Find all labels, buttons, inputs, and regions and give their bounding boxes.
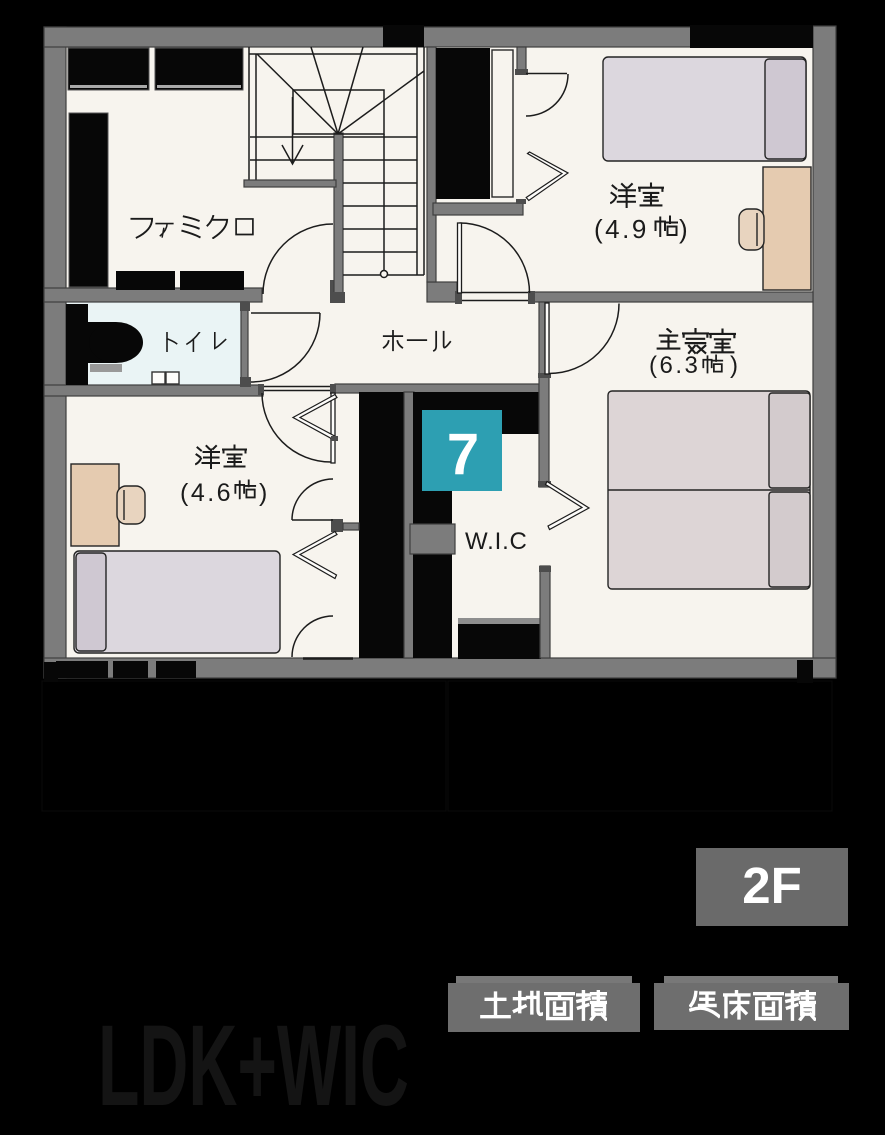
svg-text:W.I.C: W.I.C	[465, 528, 528, 555]
svg-text:LDK+WIC: LDK+WIC	[98, 1003, 409, 1131]
svg-text:): )	[679, 214, 688, 244]
svg-text:): )	[259, 479, 267, 507]
svg-text:(4.9: (4.9	[594, 214, 649, 244]
svg-text:(6.3: (6.3	[649, 352, 700, 379]
svg-text:(4.6: (4.6	[180, 479, 233, 507]
svg-text:2F: 2F	[742, 857, 802, 914]
svg-text:7: 7	[447, 422, 479, 487]
svg-text:): )	[730, 352, 738, 379]
